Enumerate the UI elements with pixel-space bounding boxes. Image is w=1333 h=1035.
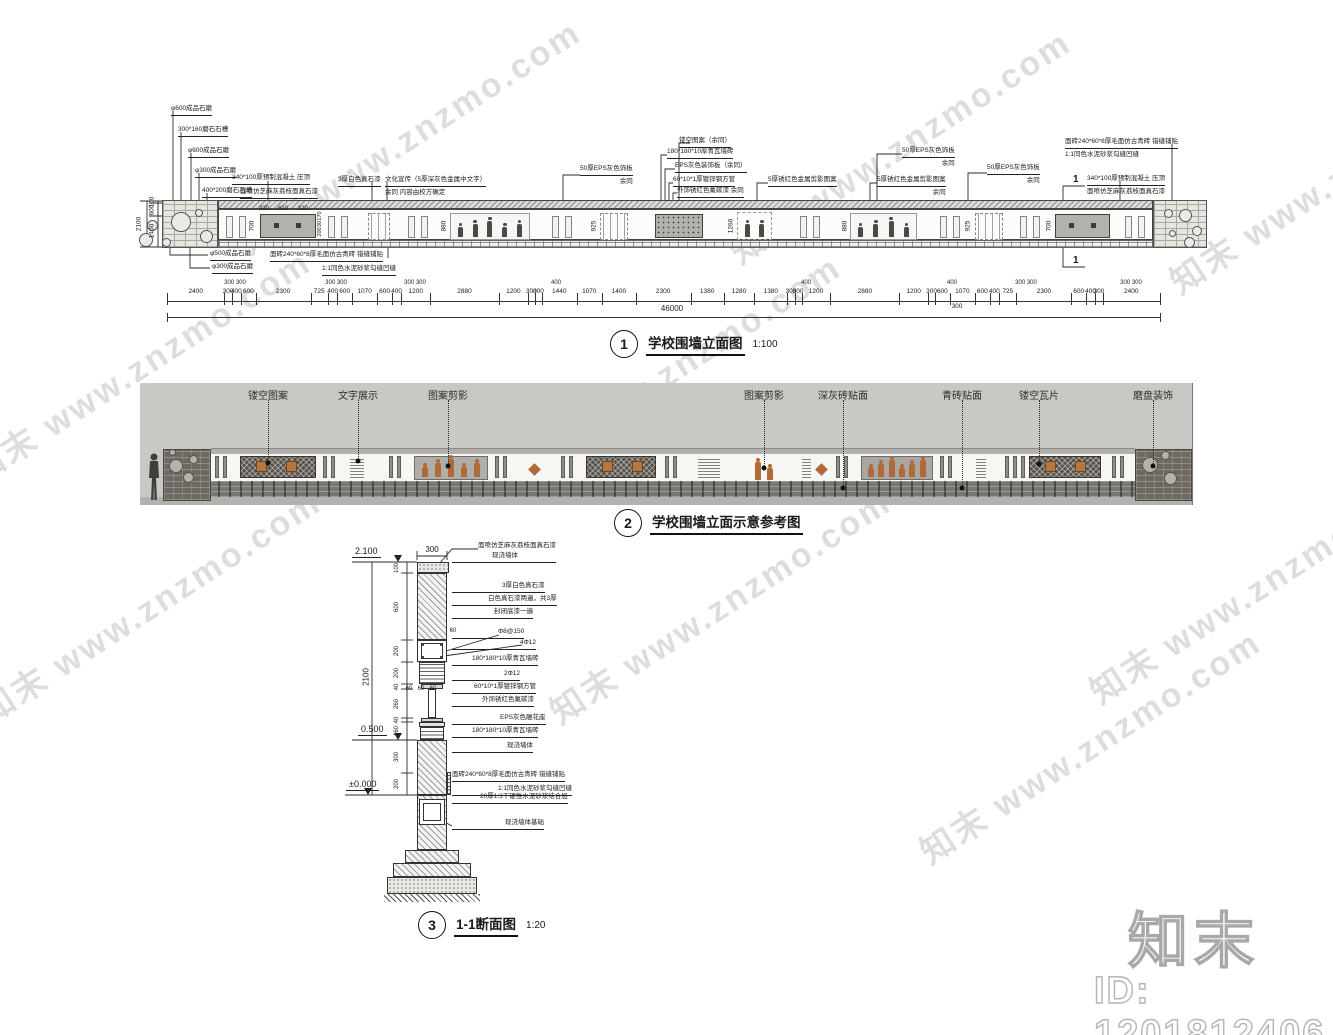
wall-slot bbox=[552, 216, 559, 238]
section-callout: 现浇墙体基础 bbox=[452, 818, 544, 830]
dim-value: 600 bbox=[937, 288, 948, 295]
section-callout: 20厚1:3干硬性水泥砂浆结合层 bbox=[452, 792, 568, 804]
sec-upper-wall bbox=[417, 573, 447, 640]
dim-tick bbox=[167, 313, 168, 322]
section-callout: EPS灰色雕花座 bbox=[452, 713, 546, 725]
callout-text: 50厚EPS灰色饰板 bbox=[580, 163, 633, 176]
dim-tick bbox=[430, 293, 431, 305]
millstone-circle bbox=[1192, 226, 1202, 236]
dim-value: 1200 bbox=[809, 288, 823, 295]
callout-text: φ300成品石磨 bbox=[195, 165, 236, 178]
ref-leader-dot bbox=[446, 464, 451, 469]
callout-text: 面喷仿芝麻灰荔枝面真石漆 bbox=[1087, 186, 1165, 197]
callout-text: 余同 bbox=[902, 158, 955, 169]
panel-height-dim: 700 bbox=[249, 221, 256, 232]
callout-text: 白色真石漆两遍，共3厚 bbox=[488, 594, 557, 604]
dim-tick bbox=[602, 293, 603, 305]
wall-slot bbox=[239, 216, 246, 238]
section-callout: 封闭底漆一遍 bbox=[452, 607, 533, 619]
callout-label: φ300成品石磨 bbox=[212, 261, 253, 274]
dim-value: 1380 bbox=[700, 288, 714, 295]
section-callout: 2Φ12 bbox=[452, 669, 520, 681]
dim-small: 60 bbox=[430, 686, 437, 692]
dim-height: 200 bbox=[394, 779, 400, 789]
slat-bar bbox=[569, 456, 573, 478]
wall-slot bbox=[408, 216, 415, 238]
callout-text: 现浇墙体 bbox=[507, 741, 533, 751]
orange-figure bbox=[767, 468, 773, 480]
ref-leader-dot bbox=[1151, 464, 1156, 469]
dim-tick bbox=[401, 293, 402, 305]
callout-label: 面喷仿芝麻灰荔枝面真石漆 bbox=[240, 186, 318, 199]
section-callout: Φ8@150 bbox=[452, 627, 524, 639]
lattice-panel bbox=[655, 214, 703, 238]
ref-leader bbox=[1153, 400, 1154, 466]
millstone-decor bbox=[169, 449, 176, 456]
dim-value-upper: 300 300 bbox=[1015, 280, 1037, 286]
section-callout: 白色真石漆两遍，共3厚 bbox=[452, 594, 557, 606]
dim-height: 300 bbox=[394, 751, 400, 761]
wall-base bbox=[218, 240, 1153, 248]
callout-text: 面砖240*60*8厚毛面仿古青砖 错缝铺贴 bbox=[452, 770, 565, 780]
ref-leader bbox=[962, 400, 963, 488]
panel-top-dim: 610 bbox=[278, 206, 288, 212]
callout-text: 180*180*10厚青瓦墙砖 bbox=[667, 146, 733, 159]
dim-total: 46000 bbox=[661, 304, 683, 313]
dim-height: 100 bbox=[394, 562, 400, 572]
level-triangle bbox=[364, 788, 372, 795]
callout-label: φ600成品石磨 bbox=[171, 103, 212, 116]
lattice-insert bbox=[632, 461, 643, 472]
sec-ground-hatch bbox=[384, 894, 480, 902]
callout-label: 340*100厚预制混凝土 压顶 bbox=[232, 172, 310, 185]
motif-panel bbox=[737, 212, 772, 240]
dim-value: 1200 bbox=[906, 288, 920, 295]
elevation-title-scale: 1:100 bbox=[753, 339, 778, 350]
callout-text: 20厚1:3干硬性水泥砂浆结合层 bbox=[480, 792, 568, 802]
millstone-decor bbox=[189, 455, 198, 464]
callout-text: 5厚锈红色金属剪影图案 bbox=[877, 174, 946, 187]
callout-text: 现浇墙体基础 bbox=[505, 818, 544, 828]
millstone-circle bbox=[200, 230, 213, 243]
figure-silhouette bbox=[517, 224, 522, 237]
cad-sheet: 知末 www.znzmo.com知末 www.znzmo.com知末 www.z… bbox=[0, 0, 1333, 1035]
panel-top-dim: 320 bbox=[298, 206, 308, 212]
slat-bar bbox=[331, 456, 335, 478]
callout-text: 文化宣传（5厚深灰色金属中文字） bbox=[385, 174, 486, 187]
figure-panel bbox=[450, 213, 530, 240]
orange-figure bbox=[899, 468, 905, 477]
level-triangle bbox=[394, 555, 402, 562]
section-callout: 现浇墙体 bbox=[452, 741, 533, 753]
dim-tick bbox=[950, 293, 951, 305]
wall-slot bbox=[421, 216, 428, 238]
millstone-circle bbox=[1169, 230, 1176, 237]
dim-value-upper: 400 bbox=[947, 280, 957, 286]
wall-slot bbox=[940, 216, 947, 238]
slat-group bbox=[1112, 456, 1128, 478]
wall-slot bbox=[341, 216, 348, 238]
callout-label: 3厚白色真石漆 bbox=[338, 174, 381, 187]
panel-stud bbox=[274, 223, 279, 228]
callout-text: 外饰锈红色氟碳漆 bbox=[482, 695, 534, 705]
orange-figure bbox=[422, 467, 428, 477]
dim-height: 260 bbox=[394, 698, 400, 708]
slat-bar bbox=[215, 456, 219, 478]
callout-label: 文化宣传（5厚深灰色金属中文字）余同 内容由校方确定 bbox=[385, 174, 486, 198]
figure-silhouette bbox=[458, 227, 463, 237]
dim-value-upper: 400 bbox=[551, 280, 561, 286]
grey-panel bbox=[1055, 214, 1110, 238]
reference-number-circle: 2 bbox=[614, 509, 642, 537]
right-pier bbox=[1153, 200, 1207, 248]
dim-value: 1200 bbox=[506, 288, 520, 295]
callout-text: 50厚EPS灰色饰板 bbox=[987, 162, 1040, 175]
callout-text: 面喷仿芝麻灰荔枝面真石漆 bbox=[240, 186, 318, 199]
dim-tick bbox=[577, 293, 578, 305]
slat-bar bbox=[561, 456, 565, 478]
dim-value: 1380 bbox=[764, 288, 778, 295]
panel-height-dim: 880 bbox=[441, 221, 448, 232]
image-id-watermark: ID: 1201812406 bbox=[1094, 970, 1333, 1035]
millstone-decor bbox=[1164, 472, 1177, 485]
dim-total: 2100 bbox=[362, 668, 371, 686]
millstone-circle bbox=[1184, 237, 1195, 248]
callout-text: 面喷仿芝麻灰荔枝面真石漆 bbox=[478, 541, 556, 551]
slat-bar bbox=[836, 456, 840, 478]
orange-figure bbox=[755, 462, 761, 480]
dim-value: 600 bbox=[243, 288, 254, 295]
callout-label: 50厚EPS灰色饰板余同 bbox=[580, 163, 633, 187]
callout-text: 余同 bbox=[580, 176, 633, 187]
sec-step bbox=[393, 863, 471, 877]
callout-text: 3厚白色真石漆 bbox=[502, 581, 545, 591]
dim-value-upper: 400 bbox=[801, 280, 811, 286]
callout-label: 50厚EPS灰色饰板余同 bbox=[902, 145, 955, 169]
callout-label: 300*160磨石石槽 bbox=[178, 124, 228, 137]
dim-tick bbox=[636, 293, 637, 305]
dim-value: 2880 bbox=[858, 288, 872, 295]
slat-bar bbox=[673, 456, 677, 478]
sec-tile-zone bbox=[420, 727, 444, 740]
slat-group bbox=[836, 456, 852, 478]
callout-text: 面砖240*60*8厚毛面仿古青砖 错缝铺贴 bbox=[1065, 136, 1178, 149]
millstone-decor bbox=[183, 472, 194, 483]
dim-value: 600 bbox=[379, 288, 390, 295]
wall-slot bbox=[800, 216, 807, 238]
callout-text: 180*180*10厚青瓦墙砖 bbox=[472, 726, 538, 736]
dim-height: 160 bbox=[394, 726, 400, 736]
dim-value-upper: 300 300 bbox=[224, 280, 246, 286]
dim-value-upper: 300 300 bbox=[1120, 280, 1142, 286]
dim-value: 725 bbox=[1002, 288, 1013, 295]
panel-height-dim: 700 bbox=[1046, 221, 1053, 232]
slat-group bbox=[665, 456, 681, 478]
lattice-tile-panel bbox=[240, 456, 316, 478]
lattice-insert bbox=[602, 461, 613, 472]
dim-value: 2400 bbox=[188, 288, 202, 295]
slat-bar bbox=[844, 456, 848, 478]
ref-leader bbox=[1039, 400, 1040, 464]
dim-tick bbox=[542, 293, 543, 305]
loose-figures bbox=[755, 458, 785, 480]
lattice-insert bbox=[286, 461, 297, 472]
dim-value: 1070 bbox=[582, 288, 596, 295]
dim-tick bbox=[754, 293, 755, 305]
dim-height: 200 bbox=[394, 668, 400, 678]
callout-text: EPS灰色装饰板（余同） bbox=[675, 160, 747, 173]
figure-silhouette bbox=[873, 224, 878, 237]
orange-figure bbox=[461, 467, 467, 477]
text-panel bbox=[975, 213, 1003, 240]
section-callout: 3厚白色真石漆 bbox=[452, 581, 545, 593]
dim-tick bbox=[1016, 293, 1017, 305]
callout-label: 180*180*10厚青瓦墙砖 bbox=[667, 146, 733, 159]
callout-text: 60*10*1厚镀锌钢方管 bbox=[474, 682, 536, 692]
callout-text: 50厚EPS灰色饰板 bbox=[902, 145, 955, 158]
slat-group bbox=[940, 456, 956, 478]
ref-leader-dot bbox=[356, 459, 361, 464]
panel-stud bbox=[1091, 223, 1096, 228]
callout-label: 面砖240*60*8厚毛面仿古青砖 错缝铺贴1:1同色水泥砂浆勾缝凹缝 bbox=[1065, 136, 1178, 160]
text-column bbox=[802, 457, 811, 478]
lattice-insert bbox=[1045, 461, 1056, 472]
section-callout: 180*180*10厚青瓦墙砖 bbox=[452, 726, 538, 738]
figure-silhouette bbox=[502, 227, 507, 237]
dim-tick bbox=[691, 293, 692, 305]
section-callout: 60*10*1厚镀锌钢方管 bbox=[452, 682, 536, 694]
millstone-decor bbox=[1161, 451, 1170, 460]
callout-label: 5厚锈红色金属剪影图案余同 bbox=[877, 174, 946, 198]
callout-text: 1:1同色水泥砂浆勾缝凹缝 bbox=[322, 263, 396, 276]
dim-height: 40 bbox=[394, 683, 400, 690]
figure-panel-ref bbox=[414, 456, 488, 480]
panel-stud bbox=[296, 223, 301, 228]
panel-height-dim: 880 bbox=[842, 221, 849, 232]
dim-top-width: 300 bbox=[425, 545, 438, 554]
dim-tick bbox=[899, 293, 900, 305]
section-cut-mark: 1 bbox=[1073, 174, 1079, 185]
elevation-number-circle: 1 bbox=[610, 330, 638, 358]
orange-figure bbox=[920, 460, 926, 477]
panel-height-dim: 1266 bbox=[728, 219, 735, 233]
orange-figure bbox=[868, 468, 874, 477]
section-callout: 180*180*10厚青瓦墙砖 bbox=[452, 654, 538, 666]
orange-figure bbox=[889, 460, 895, 477]
callout-text: 4Φ12 bbox=[520, 638, 536, 648]
ref-leader bbox=[764, 400, 765, 468]
dim-tick bbox=[499, 293, 500, 305]
millstone-circle bbox=[1179, 209, 1192, 222]
slat-bar bbox=[223, 456, 227, 478]
dim-tick bbox=[1160, 313, 1161, 322]
dim-tick bbox=[311, 293, 312, 305]
slat-bar bbox=[1112, 456, 1116, 478]
sec-tile-face bbox=[447, 772, 451, 795]
callout-text: 面砖240*60*8厚毛面仿古青砖 错缝铺贴 bbox=[270, 249, 383, 262]
dim-tick bbox=[830, 293, 831, 305]
dim-value: 600 bbox=[977, 288, 988, 295]
callout-label: 外饰锈红色氟碳漆 余同 bbox=[677, 185, 744, 198]
figure-panel bbox=[850, 213, 917, 240]
slat-bar bbox=[397, 456, 401, 478]
lattice-insert bbox=[1075, 461, 1086, 472]
slat-group bbox=[561, 456, 577, 478]
sec-step bbox=[405, 850, 459, 863]
dim-value: 725 bbox=[314, 288, 325, 295]
millstone-circle bbox=[1164, 209, 1173, 218]
dim-value-upper: 300 300 bbox=[404, 280, 426, 286]
dim-tick bbox=[256, 293, 257, 305]
callout-text: 余同 bbox=[987, 175, 1040, 186]
panel-side-dim: 170 bbox=[317, 211, 323, 220]
sec-gravel-pad bbox=[387, 877, 477, 894]
callout-text: 3厚白色真石漆 bbox=[338, 174, 381, 187]
panel-side-dim: 30 bbox=[317, 221, 323, 227]
panel-height-dim: 925 bbox=[965, 221, 972, 232]
millstone-decor bbox=[169, 459, 183, 473]
callout-label: 1:1同色水泥砂浆勾缝凹缝 bbox=[322, 263, 396, 276]
dim-height: 600 bbox=[394, 601, 400, 611]
callout-label: φ300成品石磨 bbox=[195, 165, 236, 178]
callout-label: φ500成品石磨 bbox=[210, 248, 251, 261]
figure-silhouette bbox=[473, 224, 478, 237]
dim-small: 60 bbox=[406, 686, 413, 692]
section-callout: 外饰锈红色氟碳漆 bbox=[452, 695, 534, 707]
wall-slot bbox=[813, 216, 820, 238]
sec-lower-wall bbox=[417, 740, 447, 795]
text-column bbox=[976, 457, 986, 478]
callout-text: 180*180*10厚青瓦墙砖 bbox=[472, 654, 538, 664]
dim-value: 1070 bbox=[955, 288, 969, 295]
wall-slot bbox=[953, 216, 960, 238]
figure-silhouette bbox=[487, 221, 492, 237]
section-callout: 面喷仿芝麻灰荔枝面真石漆现浇墙体 bbox=[452, 541, 556, 563]
slat-bar bbox=[1013, 456, 1017, 478]
wall-slot bbox=[328, 216, 335, 238]
callout-text: 余同 bbox=[877, 187, 946, 198]
panel-stud bbox=[1069, 223, 1074, 228]
figure-silhouette bbox=[745, 224, 750, 237]
callout-text: φ600成品石磨 bbox=[171, 103, 212, 116]
callout-text: 余同 内容由校方确定 bbox=[385, 187, 486, 198]
slat-group bbox=[215, 456, 231, 478]
ref-leader bbox=[448, 400, 449, 466]
section-callout: 4Φ12 bbox=[452, 638, 536, 650]
text-panel bbox=[368, 213, 390, 240]
wall-slot bbox=[1125, 216, 1132, 238]
dim-value: 2880 bbox=[457, 288, 471, 295]
dim-tick bbox=[1160, 293, 1161, 305]
lattice-tile-panel bbox=[586, 456, 656, 478]
text-column bbox=[698, 457, 720, 478]
orange-figure bbox=[878, 464, 884, 477]
elevation-title-text: 学校围墙立面图 bbox=[646, 332, 745, 356]
wall-slot bbox=[1020, 216, 1027, 238]
dim-value: 2300 bbox=[1037, 288, 1051, 295]
section-cut-mark: 1 bbox=[1073, 255, 1079, 266]
dim-value: 2300 bbox=[276, 288, 290, 295]
panel-side-dim: 200 bbox=[317, 227, 323, 236]
orange-figure bbox=[474, 463, 480, 477]
slat-bar bbox=[1021, 456, 1025, 478]
relief-panel bbox=[861, 456, 933, 480]
slat-bar bbox=[1005, 456, 1009, 478]
millstone-circle bbox=[162, 238, 171, 247]
grey-panel bbox=[260, 214, 316, 238]
slat-bar bbox=[948, 456, 952, 478]
ref-leader bbox=[268, 400, 269, 463]
ref-base bbox=[163, 481, 1192, 497]
callout-text: 340*100厚预制混凝土 压顶 bbox=[232, 172, 310, 185]
dim-line bbox=[167, 317, 1160, 318]
wall-slot bbox=[1138, 216, 1145, 238]
dim-tick bbox=[724, 293, 725, 305]
callout-label: 面砖240*60*8厚毛面仿古青砖 错缝铺贴 bbox=[270, 249, 383, 262]
slat-bar bbox=[389, 456, 393, 478]
orange-figure bbox=[435, 463, 441, 477]
level-label: ±0.000 bbox=[346, 779, 379, 791]
figure-silhouette bbox=[889, 221, 894, 237]
dim-value: 400 bbox=[231, 288, 242, 295]
wall-coping bbox=[218, 200, 1153, 209]
dim-tick bbox=[1103, 293, 1104, 305]
dim-value: 1280 bbox=[732, 288, 746, 295]
section-callout: 面砖240*60*8厚毛面仿古青砖 错缝铺贴 bbox=[452, 770, 565, 782]
callout-label: 5厚锈红色金属剪影图案 bbox=[768, 174, 837, 187]
level-label: 0.500 bbox=[358, 724, 387, 736]
dim-tick bbox=[352, 293, 353, 305]
slat-bar bbox=[1120, 456, 1124, 478]
text-panel bbox=[600, 213, 628, 240]
callout-text: EPS灰色雕花座 bbox=[500, 713, 546, 723]
callout-text: 1:1同色水泥砂浆勾缝凹缝 bbox=[1065, 149, 1178, 160]
callout-text: φ500成品石磨 bbox=[210, 248, 251, 261]
dim-value: 1200 bbox=[408, 288, 422, 295]
dim-height: 40 bbox=[394, 717, 400, 724]
brand-logo-watermark: 知末 bbox=[1128, 893, 1260, 980]
section-number-circle: 3 bbox=[418, 911, 446, 939]
panel-height-dim: 925 bbox=[591, 221, 598, 232]
wall-slot bbox=[226, 216, 233, 238]
figure-silhouette bbox=[904, 227, 909, 237]
slat-group bbox=[1005, 456, 1029, 478]
dim-value: 2400 bbox=[1124, 288, 1138, 295]
dim-tick bbox=[167, 293, 168, 305]
dim-value: 1400 bbox=[612, 288, 626, 295]
slat-group bbox=[495, 456, 511, 478]
ref-ground bbox=[140, 497, 1192, 505]
level-label: 2.100 bbox=[352, 546, 381, 558]
slat-bar bbox=[495, 456, 499, 478]
callout-label: EPS灰色装饰板（余同） bbox=[675, 160, 747, 173]
dim-small: 60 bbox=[418, 686, 425, 692]
dim-tick bbox=[999, 293, 1000, 305]
ref-leader bbox=[843, 400, 844, 488]
dim-value-lower: 300 bbox=[952, 303, 963, 310]
slat-bar bbox=[665, 456, 669, 478]
elevation-title: 1 学校围墙立面图 1:100 bbox=[610, 330, 778, 358]
dim-value: 2300 bbox=[656, 288, 670, 295]
dim-tick bbox=[802, 293, 803, 305]
callout-label: 50厚EPS灰色饰板余同 bbox=[987, 162, 1040, 186]
panel-top-dim: 320 bbox=[259, 206, 269, 212]
dim-height: 1400 bbox=[149, 224, 156, 238]
callout-text: 5厚锈红色金属剪影图案 bbox=[768, 174, 837, 187]
reference-title: 2 学校围墙立面示意参考图 bbox=[614, 509, 803, 537]
orange-figure bbox=[909, 464, 915, 477]
sec-steel-tube bbox=[428, 689, 436, 718]
